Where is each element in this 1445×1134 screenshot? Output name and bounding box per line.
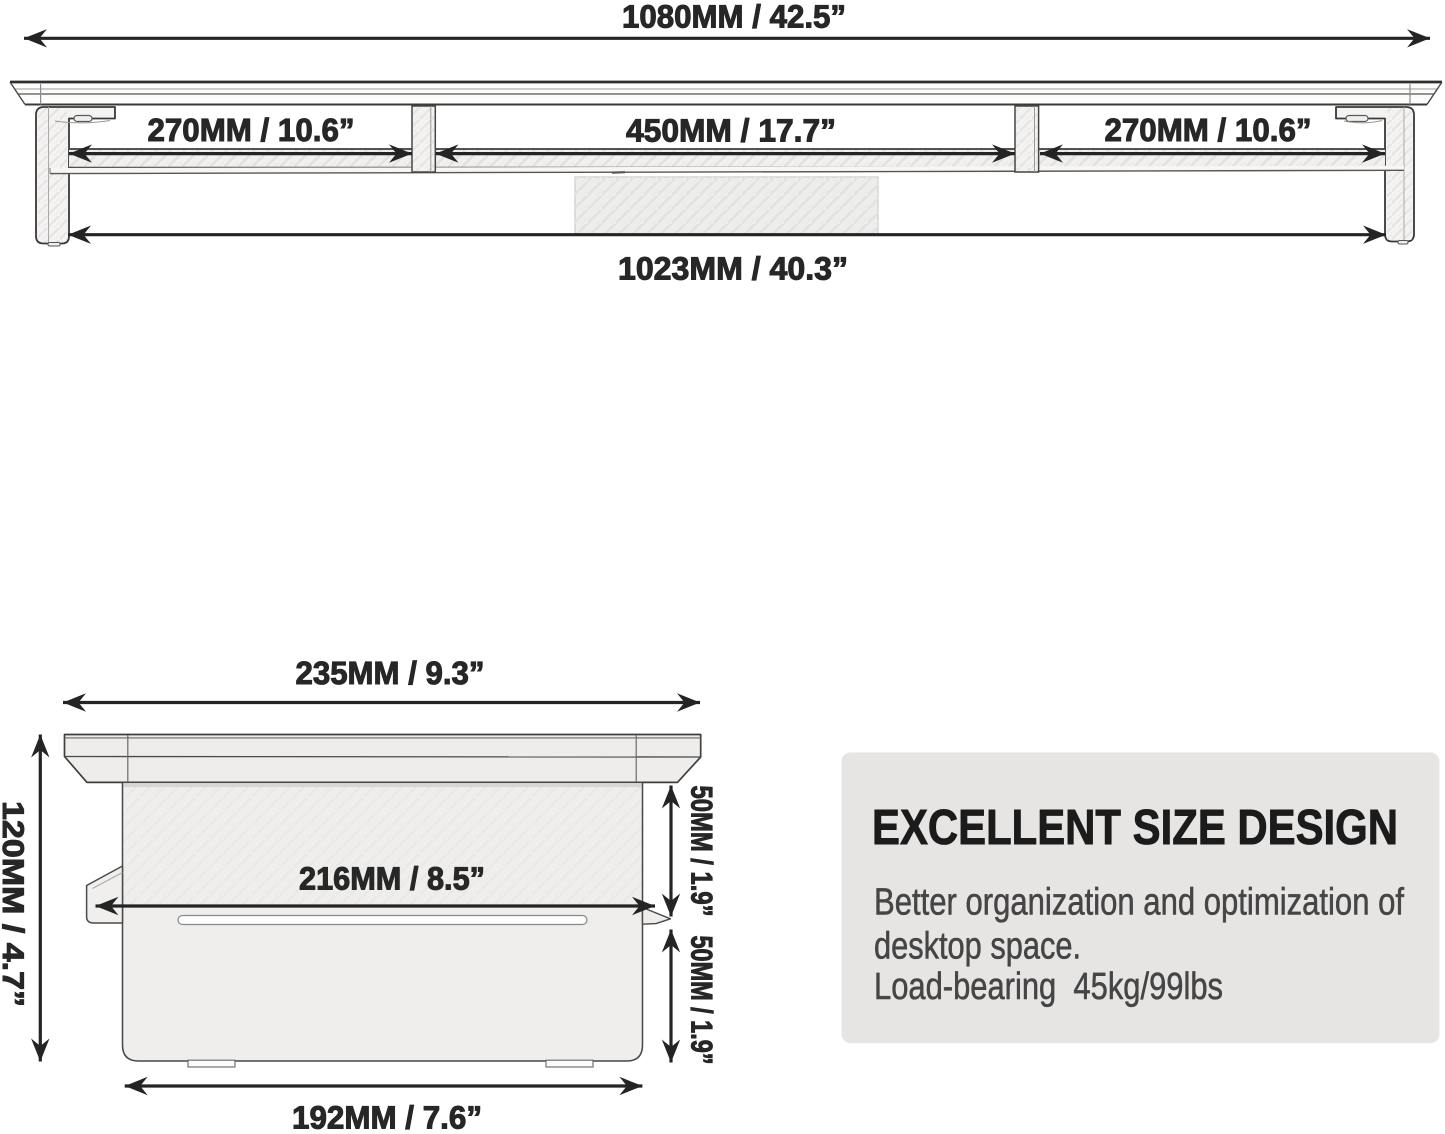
svg-text:50MM / 1.9”: 50MM / 1.9” — [685, 786, 718, 917]
svg-text:235MM / 9.3”: 235MM / 9.3” — [296, 655, 485, 691]
svg-text:216MM / 8.5”: 216MM / 8.5” — [299, 861, 485, 897]
svg-text:50MM / 1.9”: 50MM / 1.9” — [685, 936, 718, 1065]
svg-text:450MM / 17.7”: 450MM / 17.7” — [626, 113, 836, 149]
svg-text:1023MM / 40.3”: 1023MM / 40.3” — [618, 251, 848, 287]
svg-text:EXCELLENT SIZE DESIGN: EXCELLENT SIZE DESIGN — [872, 800, 1398, 855]
svg-text:270MM / 10.6”: 270MM / 10.6” — [148, 112, 355, 148]
svg-text:120MM / 4.7”: 120MM / 4.7” — [0, 801, 29, 1007]
svg-text:Load-bearing 45kg/99lbs: Load-bearing 45kg/99lbs — [874, 966, 1223, 1008]
svg-text:desktop space.: desktop space. — [874, 926, 1081, 968]
svg-text:1080MM / 42.5”: 1080MM / 42.5” — [622, 0, 846, 35]
svg-text:192MM / 7.6”: 192MM / 7.6” — [292, 1100, 482, 1134]
svg-text:270MM / 10.6”: 270MM / 10.6” — [1105, 112, 1312, 148]
svg-text:Better organization and optimi: Better organization and optimization of — [874, 882, 1404, 924]
